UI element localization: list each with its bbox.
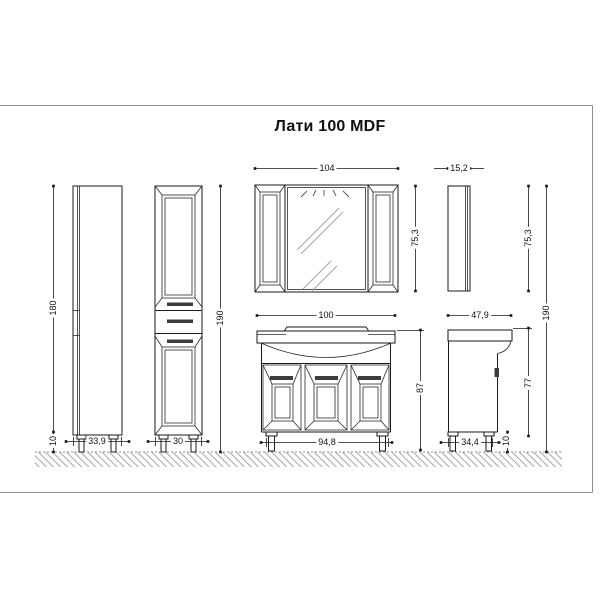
- door-handle: [495, 368, 500, 377]
- dim-label-mirror-width: 104: [317, 163, 336, 173]
- dim-label-mirror-height-side: 75,3: [523, 227, 533, 249]
- dim-label-mirror-depth: 15,2: [448, 163, 470, 173]
- dim-label-column-side-width: 33,9: [86, 436, 108, 446]
- countertop-side: [448, 330, 512, 341]
- dim-label-column-front-width: 30: [171, 436, 185, 446]
- dim-label-vanity-height: 87: [415, 381, 425, 395]
- door-handle: [270, 376, 293, 380]
- tall-cabinet-side-view: [73, 186, 122, 452]
- mirror-cabinet-side-view: [448, 186, 470, 291]
- technical-drawing-page: Лати 100 MDF 104 15,2 75,3 75,3 180 190 …: [0, 0, 600, 600]
- basin-curve: [261, 343, 391, 358]
- page-title: Лати 100 MDF: [275, 118, 386, 136]
- vanity-side-view: [448, 330, 512, 451]
- drawing-canvas: [0, 0, 600, 600]
- door-handle: [315, 376, 338, 380]
- mirror-cabinet-front-view: [255, 185, 398, 292]
- dim-label-column-total-height: 190: [215, 308, 225, 327]
- dim-label-vanity-base-width: 94,8: [316, 437, 338, 447]
- dim-label-mirror-height: 75,3: [410, 227, 420, 249]
- dim-label-vanity-leg-height: 10: [501, 434, 511, 448]
- door-handle: [167, 340, 193, 344]
- dim-label-total-height: 190: [541, 303, 551, 322]
- dim-label-vanity-depth: 47,9: [469, 310, 491, 320]
- countertop: [257, 331, 395, 343]
- door-handle: [167, 303, 193, 307]
- dim-label-vanity-body-height: 77: [523, 376, 533, 390]
- tall-cabinet-front-view: [155, 186, 202, 452]
- drawer-handle: [167, 320, 193, 324]
- door-handle: [358, 376, 381, 380]
- dim-label-column-height: 180: [48, 298, 58, 317]
- dim-label-column-leg-height: 10: [48, 434, 58, 448]
- basin-profile: [498, 341, 512, 354]
- dim-label-vanity-width: 100: [316, 310, 335, 320]
- vanity-front-view: [257, 327, 395, 451]
- dim-label-vanity-base-depth: 34,4: [459, 437, 481, 447]
- ground: [35, 452, 562, 467]
